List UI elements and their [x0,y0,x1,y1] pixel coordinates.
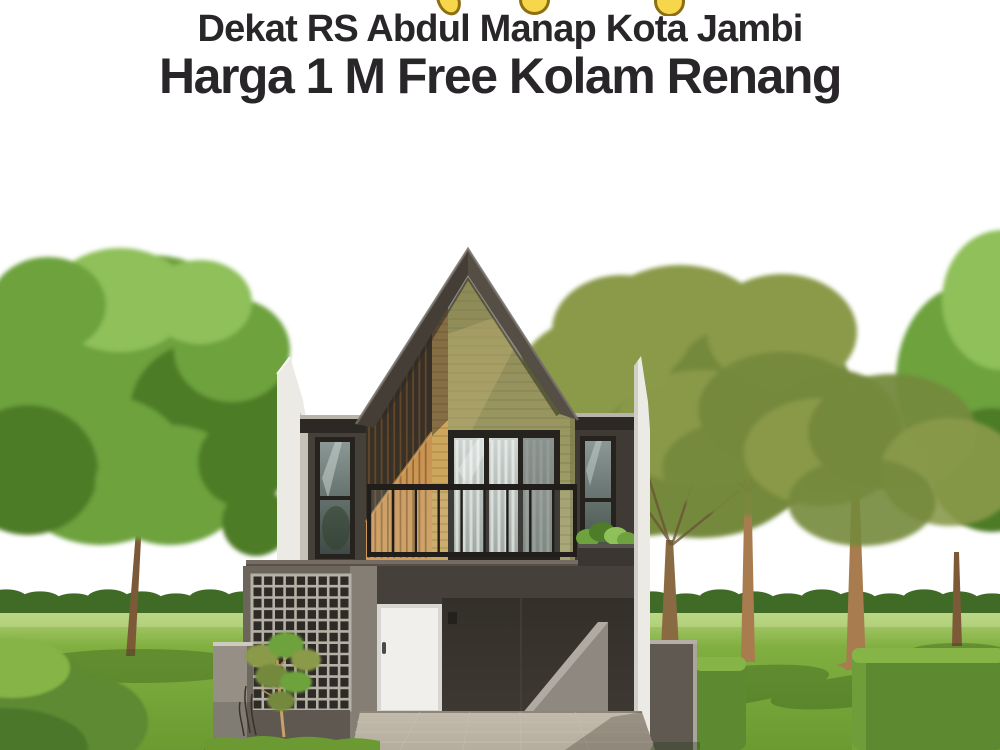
front-door [377,604,442,714]
driveway [352,712,655,750]
door-handle [382,642,386,654]
hedge-right-small [694,657,746,750]
ad-image: Dekat RS Abdul Manap Kota Jambi Harga 1 … [0,0,1000,750]
left-wing-window [315,437,355,559]
scene-illustration [0,0,1000,750]
headline-location: Dekat RS Abdul Manap Kota Jambi [0,9,1000,49]
right-parapet-fin [634,356,650,750]
headline-price: Harga 1 M Free Kolam Renang [0,49,1000,103]
right-garden-wall [650,640,697,750]
railing-top-rail [368,484,576,490]
balcony-railing [367,484,577,557]
hedge-right-large [852,648,1000,750]
